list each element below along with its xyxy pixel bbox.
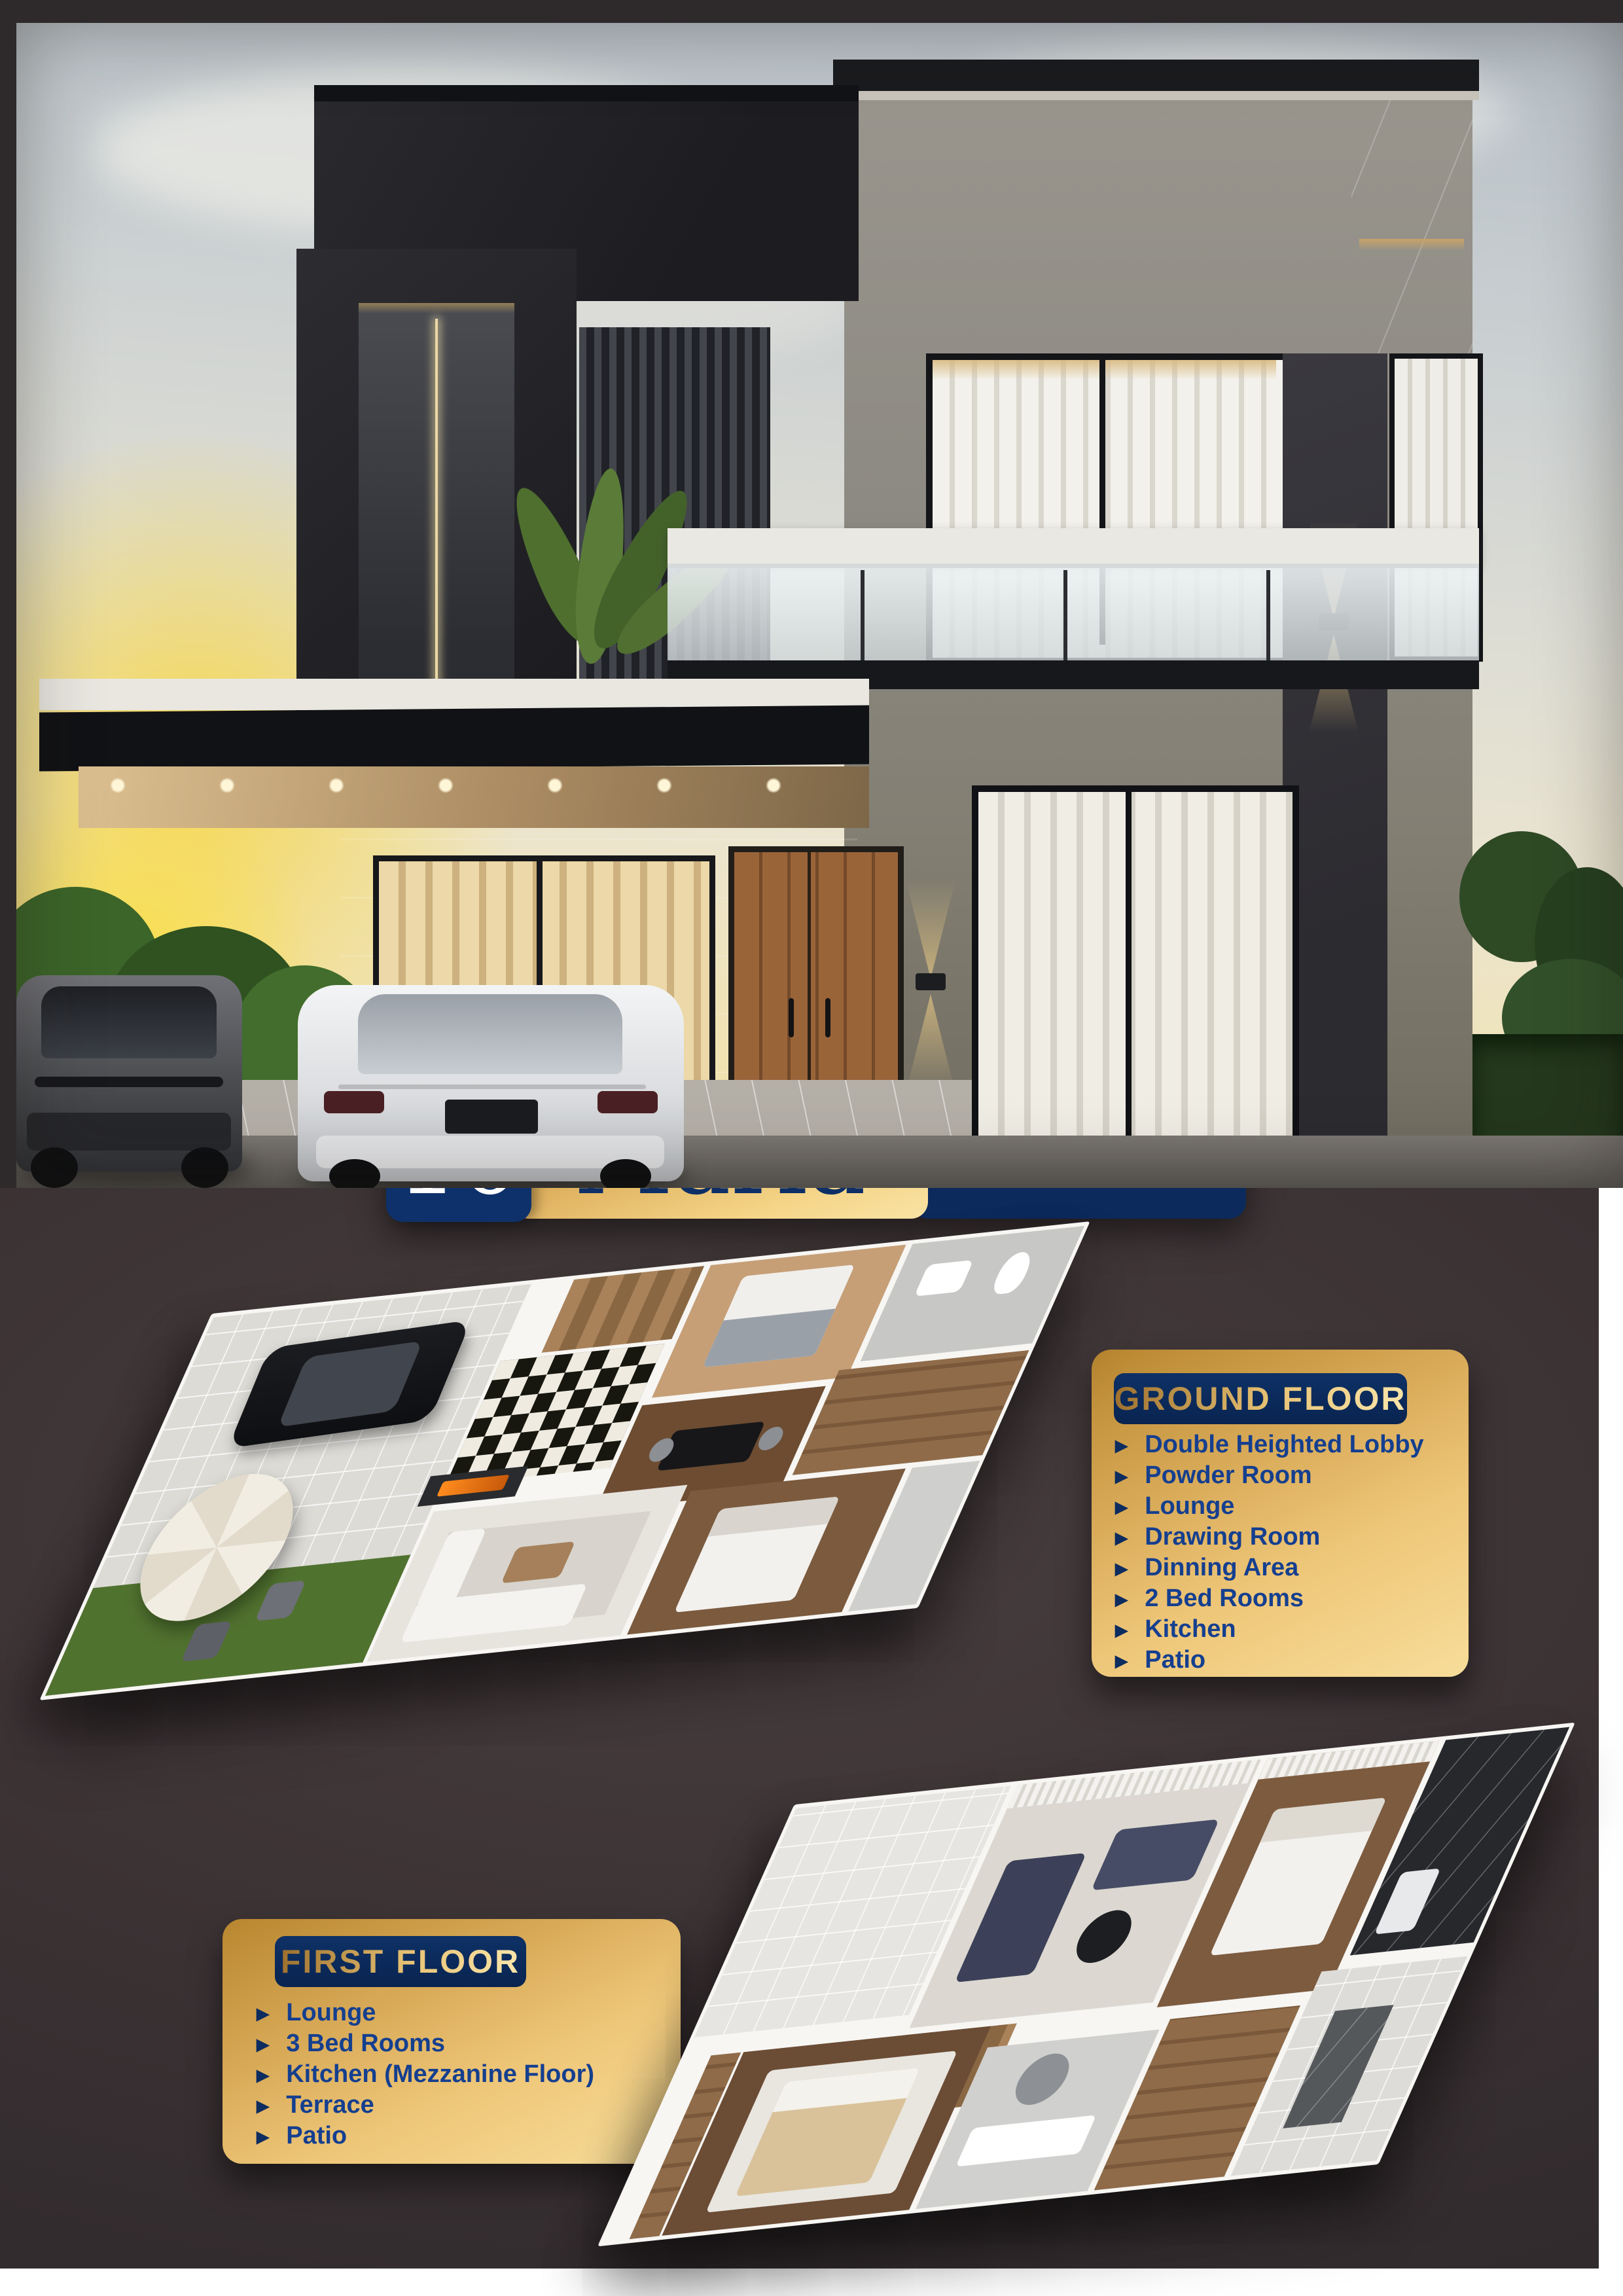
- photo-vignette: [16, 23, 1623, 1188]
- feature-label: Dinning Area: [1145, 1554, 1298, 1582]
- bullet-icon: ▶: [1115, 1590, 1128, 1609]
- bullet-icon: ▶: [257, 2096, 269, 2116]
- feature-label: Lounge: [1145, 1492, 1234, 1520]
- feature-label: Terrace: [286, 2091, 374, 2119]
- list-item: ▶Double Heighted Lobby: [1115, 1429, 1424, 1460]
- list-item: ▶Lounge: [257, 1998, 594, 2028]
- bullet-icon: ▶: [1115, 1621, 1128, 1640]
- ground-floor-title-box: GROUND FLOOR: [1114, 1373, 1407, 1424]
- first-floor-feature-list: ▶Lounge ▶3 Bed Rooms ▶Kitchen (Mezzanine…: [257, 1998, 594, 2151]
- ground-floor-plan: [38, 1219, 1092, 1700]
- list-item: ▶Patio: [257, 2121, 594, 2151]
- feature-label: 2 Bed Rooms: [1145, 1585, 1304, 1613]
- bullet-icon: ▶: [1115, 1498, 1128, 1517]
- list-item: ▶Lounge: [1115, 1491, 1424, 1522]
- ground-floor-plot: [39, 1221, 1090, 1700]
- list-item: ▶Powder Room: [1115, 1460, 1424, 1491]
- feature-label: Lounge: [286, 1999, 376, 2027]
- list-item: ▶Kitchen: [1115, 1614, 1424, 1645]
- ground-floor-panel: GROUND FLOOR ▶Double Heighted Lobby ▶Pow…: [1092, 1350, 1469, 1677]
- bullet-icon: ▶: [1115, 1651, 1128, 1671]
- list-item: ▶Kitchen (Mezzanine Floor): [257, 2059, 594, 2090]
- bullet-icon: ▶: [1115, 1559, 1128, 1579]
- feature-label: Double Heighted Lobby: [1145, 1431, 1423, 1459]
- list-item: ▶Dinning Area: [1115, 1552, 1424, 1583]
- feature-label: Kitchen: [1145, 1615, 1236, 1643]
- list-item: ▶Drawing Room: [1115, 1522, 1424, 1552]
- list-item: ▶Patio: [1115, 1645, 1424, 1676]
- bullet-icon: ▶: [257, 2066, 269, 2085]
- feature-label: Kitchen (Mezzanine Floor): [286, 2060, 594, 2089]
- bullet-icon: ▶: [1115, 1436, 1128, 1456]
- first-floor-title-box: FIRST FLOOR: [275, 1936, 526, 1987]
- ground-floor-feature-list: ▶Double Heighted Lobby ▶Powder Room ▶Lou…: [1115, 1429, 1424, 1676]
- feature-label: Drawing Room: [1145, 1523, 1320, 1551]
- list-item: ▶3 Bed Rooms: [257, 2028, 594, 2059]
- bullet-icon: ▶: [257, 2127, 269, 2147]
- villa-exterior-photo: [16, 23, 1623, 1188]
- feature-label: Patio: [1145, 1646, 1205, 1674]
- first-floor-title: FIRST FLOOR: [281, 1943, 520, 1981]
- list-item: ▶Terrace: [257, 2090, 594, 2121]
- feature-label: Patio: [286, 2122, 347, 2150]
- first-floor-plot: [597, 1723, 1575, 2247]
- bullet-icon: ▶: [257, 2004, 269, 2024]
- list-item: ▶2 Bed Rooms: [1115, 1583, 1424, 1614]
- bullet-icon: ▶: [1115, 1528, 1128, 1548]
- bullet-icon: ▶: [257, 2035, 269, 2054]
- bullet-icon: ▶: [1115, 1467, 1128, 1486]
- ground-floor-title: GROUND FLOOR: [1114, 1380, 1406, 1418]
- feature-label: Powder Room: [1145, 1462, 1311, 1490]
- first-floor-plan: [584, 1720, 1618, 2251]
- feature-label: 3 Bed Rooms: [286, 2030, 445, 2058]
